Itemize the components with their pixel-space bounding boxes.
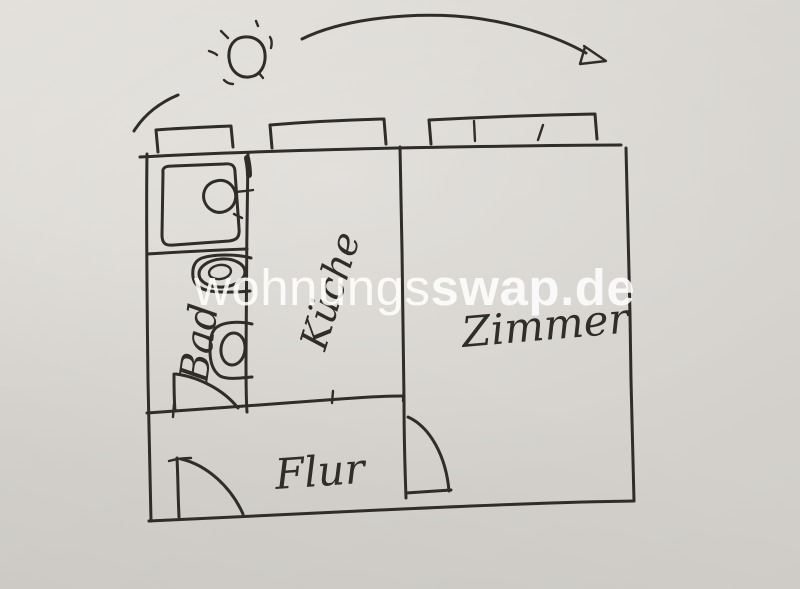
sun-icon <box>209 21 272 84</box>
watermark: wohnungsswap.de <box>194 260 635 316</box>
window-zimmer <box>429 114 597 144</box>
window-kueche <box>270 119 386 148</box>
arc-stroke <box>134 95 178 131</box>
window-bad <box>156 126 233 152</box>
shower <box>162 164 253 245</box>
zimmer-door <box>406 417 451 493</box>
entrance-door <box>169 458 243 517</box>
watermark-regular-text: wohnungs <box>194 259 431 316</box>
room-label-flur: Flur <box>272 444 369 499</box>
floorplan-photo: Bad Küche Zimmer Flur wohnungsswap.de <box>0 0 800 589</box>
arrow-icon <box>302 15 606 64</box>
watermark-bold-text: swap.de <box>431 259 636 316</box>
